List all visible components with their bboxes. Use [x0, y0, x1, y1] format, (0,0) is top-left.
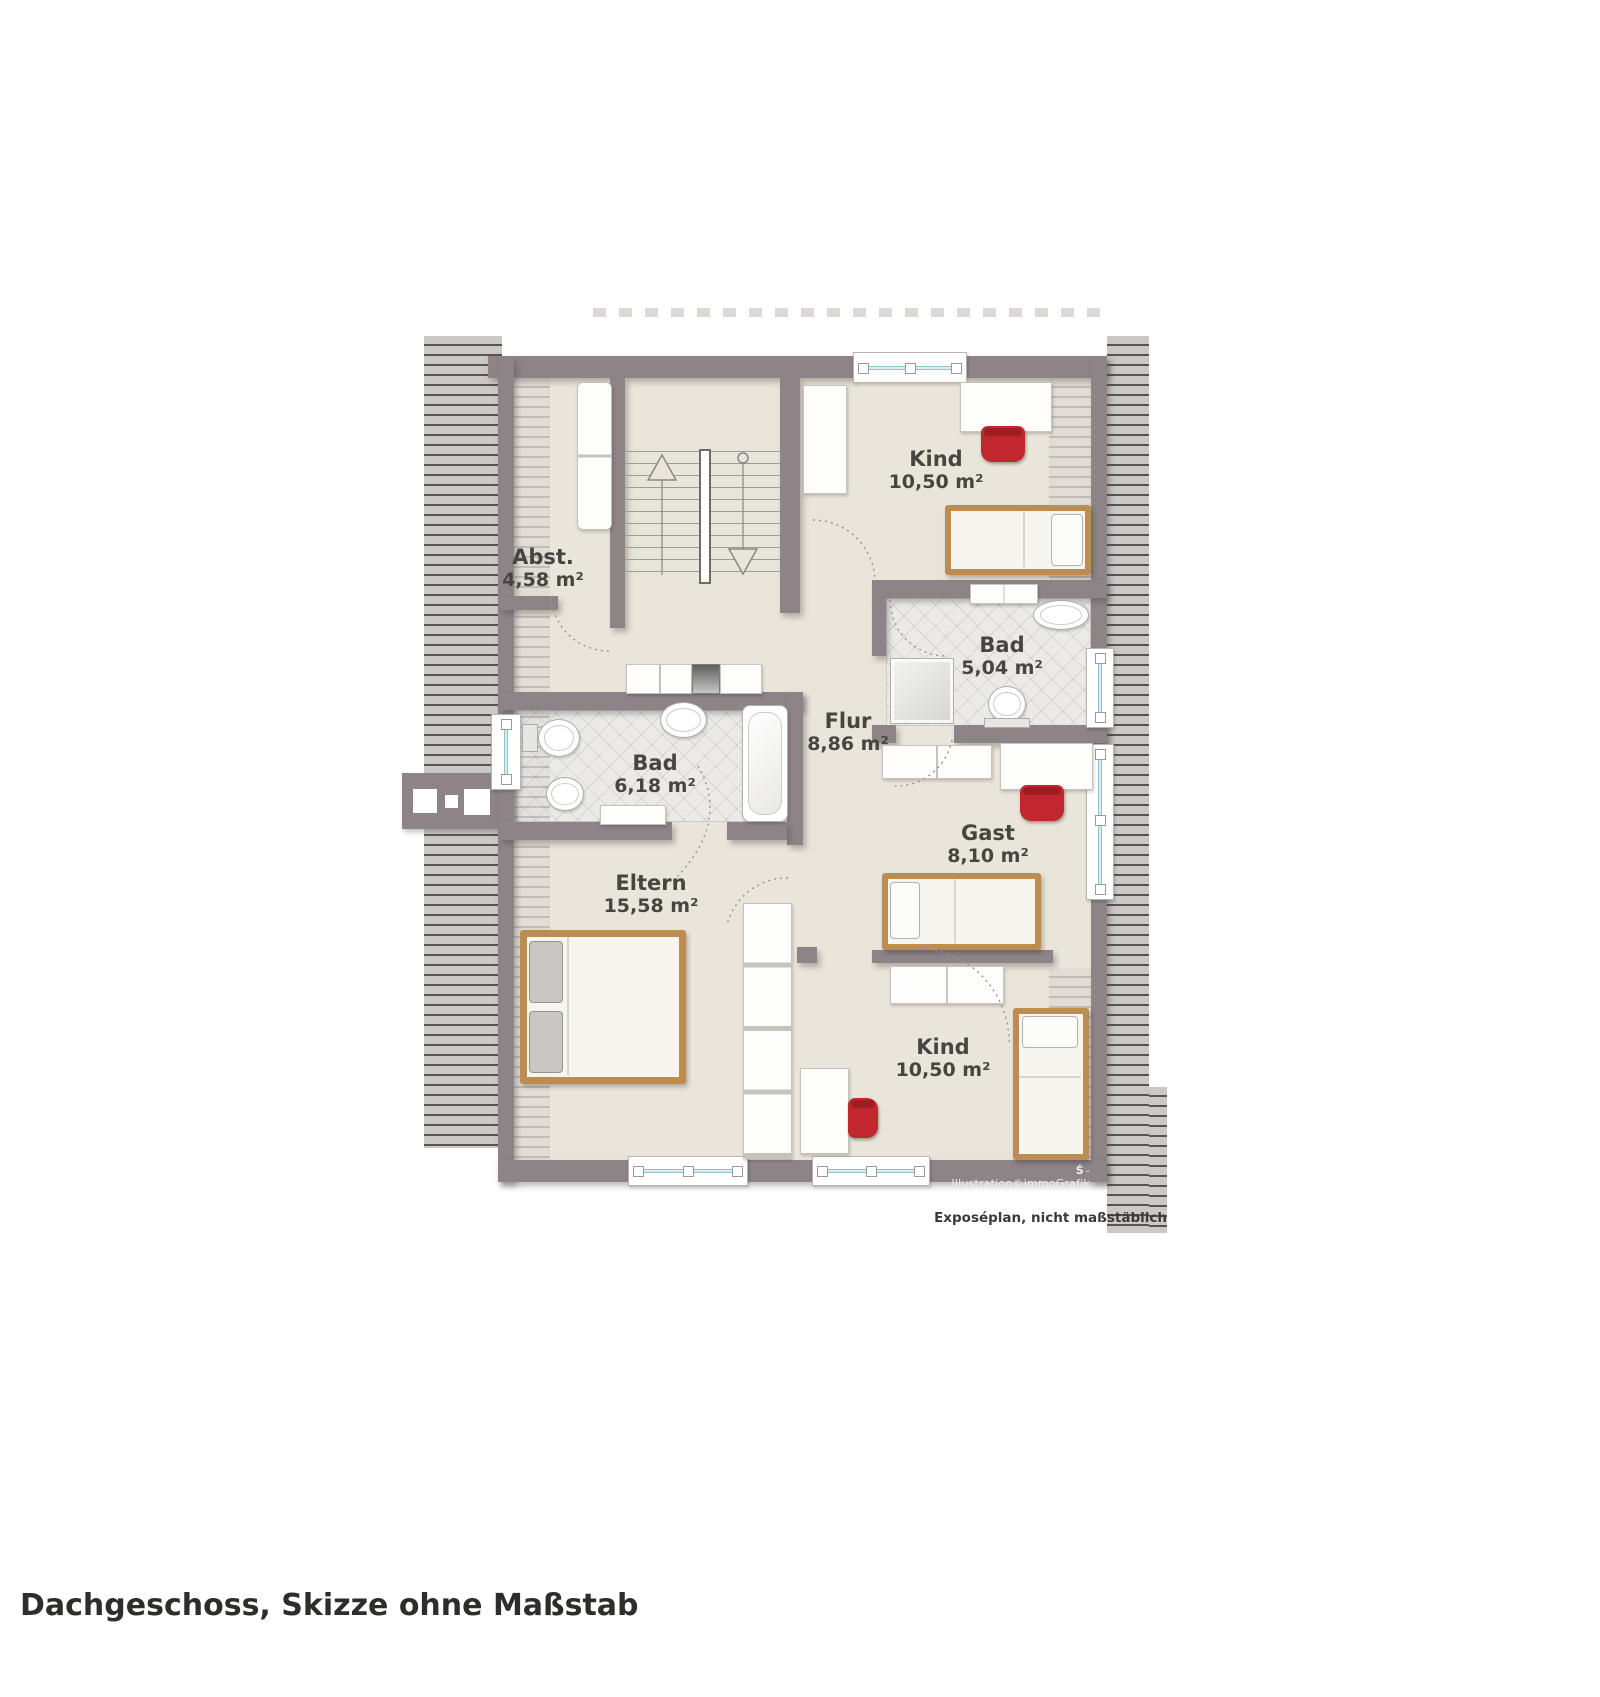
- room-name: Eltern: [591, 872, 711, 896]
- illustration-credit: Ś-Illustration©immoGrafik: [938, 1164, 1090, 1190]
- stairs-up-arrow-icon: [648, 455, 676, 480]
- room-label-child-top: Kind 10,50 m²: [876, 448, 996, 493]
- room-label-storage: Abst. 4,58 m²: [483, 546, 603, 591]
- credit-prefix: -: [1086, 1164, 1090, 1177]
- sparkasse-logo-icon: Ś: [1076, 1164, 1084, 1177]
- room-area: 8,10 m²: [928, 846, 1048, 867]
- room-label-bathroom-small: Bad 5,04 m²: [942, 634, 1062, 679]
- room-name: Kind: [883, 1036, 1003, 1060]
- room-area: 10,50 m²: [876, 472, 996, 493]
- room-name: Bad: [595, 752, 715, 776]
- door-arc-parents: [727, 878, 788, 925]
- page-caption: Dachgeschoss, Skizze ohne Maßstab: [20, 1588, 639, 1623]
- room-label-guest: Gast 8,10 m²: [928, 822, 1048, 867]
- plan-annotations: [398, 308, 1168, 1238]
- room-area: 6,18 m²: [595, 776, 715, 797]
- door-arc-bathroom-small: [890, 600, 946, 656]
- room-area: 15,58 m²: [591, 896, 711, 917]
- room-name: Bad: [942, 634, 1062, 658]
- door-arc-storage: [551, 598, 609, 651]
- floor-plan: Abst. 4,58 m² Kind 10,50 m² Bad 5,04 m² …: [398, 308, 1168, 1238]
- stairs-guide-start: [738, 453, 748, 463]
- door-arc-child-bottom: [917, 948, 1009, 1042]
- room-label-bathroom-large: Bad 6,18 m²: [595, 752, 715, 797]
- room-area: 4,58 m²: [483, 570, 603, 591]
- door-arc-child-top: [813, 520, 875, 582]
- room-name: Kind: [876, 448, 996, 472]
- room-name: Gast: [928, 822, 1048, 846]
- stairs-down-arrow-icon: [729, 549, 757, 574]
- room-area: 10,50 m²: [883, 1060, 1003, 1081]
- room-name: Abst.: [483, 546, 603, 570]
- room-label-hallway: Flur 8,86 m²: [788, 710, 908, 755]
- floor-plan-page: Abst. 4,58 m² Kind 10,50 m² Bad 5,04 m² …: [0, 0, 1600, 1697]
- room-label-parents: Eltern 15,58 m²: [591, 872, 711, 917]
- room-area: 8,86 m²: [788, 734, 908, 755]
- room-area: 5,04 m²: [942, 658, 1062, 679]
- room-label-child-bottom: Kind 10,50 m²: [883, 1036, 1003, 1081]
- credit-text: Illustration©immoGrafik: [951, 1177, 1090, 1190]
- disclaimer-text: Exposéplan, nicht maßstäblich: [860, 1210, 1167, 1226]
- room-name: Flur: [788, 710, 908, 734]
